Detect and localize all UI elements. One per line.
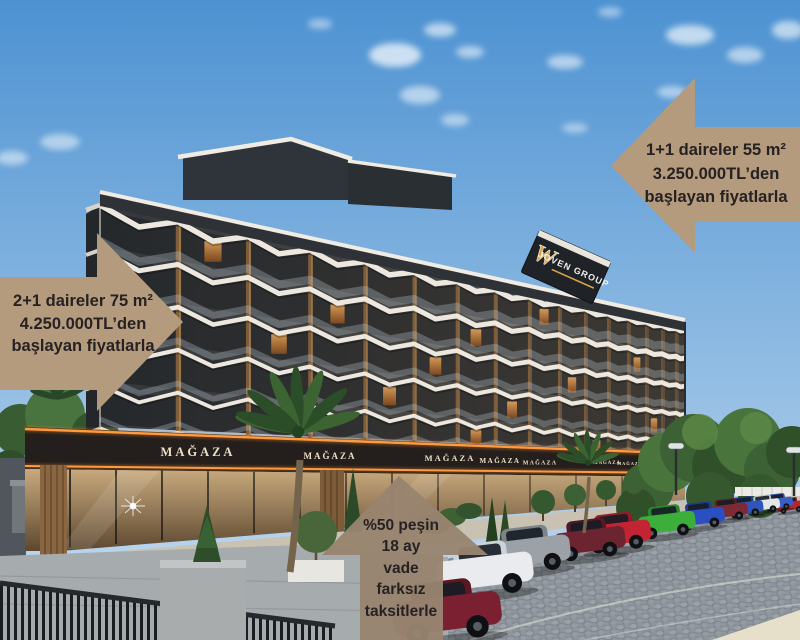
callout-line: başlayan fiyatlarla [11, 337, 155, 355]
lamp-head-icon [786, 447, 800, 453]
gray-planter [160, 560, 246, 640]
callout-line: 3.250.000TL’den [653, 165, 780, 183]
store-sign: MAĞAZA [304, 451, 357, 461]
callout-line: 2+1 daireler 75 m² [13, 292, 153, 310]
callout-line: 1+1 daireler 55 m² [646, 141, 786, 159]
white-planter [288, 560, 344, 582]
callout-line: taksitlerle [365, 603, 438, 620]
store-sign: MAĞAZA [161, 445, 236, 459]
callout-line: farksız [376, 581, 425, 598]
callout-line: 4.250.000TL’den [20, 315, 147, 333]
callout-line: başlayan fiyatlarla [644, 188, 788, 206]
callout-line: vade [383, 560, 419, 577]
callout-line: %50 peşin [363, 517, 439, 534]
store-sign: MAĞAZA [480, 457, 521, 465]
store-sign: MAĞAZA [425, 453, 476, 463]
promo-render-image: W JOVEN GROUP MAĞAZA MAĞAZA MAĞAZA MAĞAZ… [0, 0, 800, 640]
callout-line: 18 ay [382, 538, 421, 555]
scene: W JOVEN GROUP MAĞAZA MAĞAZA MAĞAZA MAĞAZ… [0, 0, 800, 640]
store-sign: MAĞAZA [523, 459, 558, 467]
lamp-head-icon [668, 443, 684, 449]
